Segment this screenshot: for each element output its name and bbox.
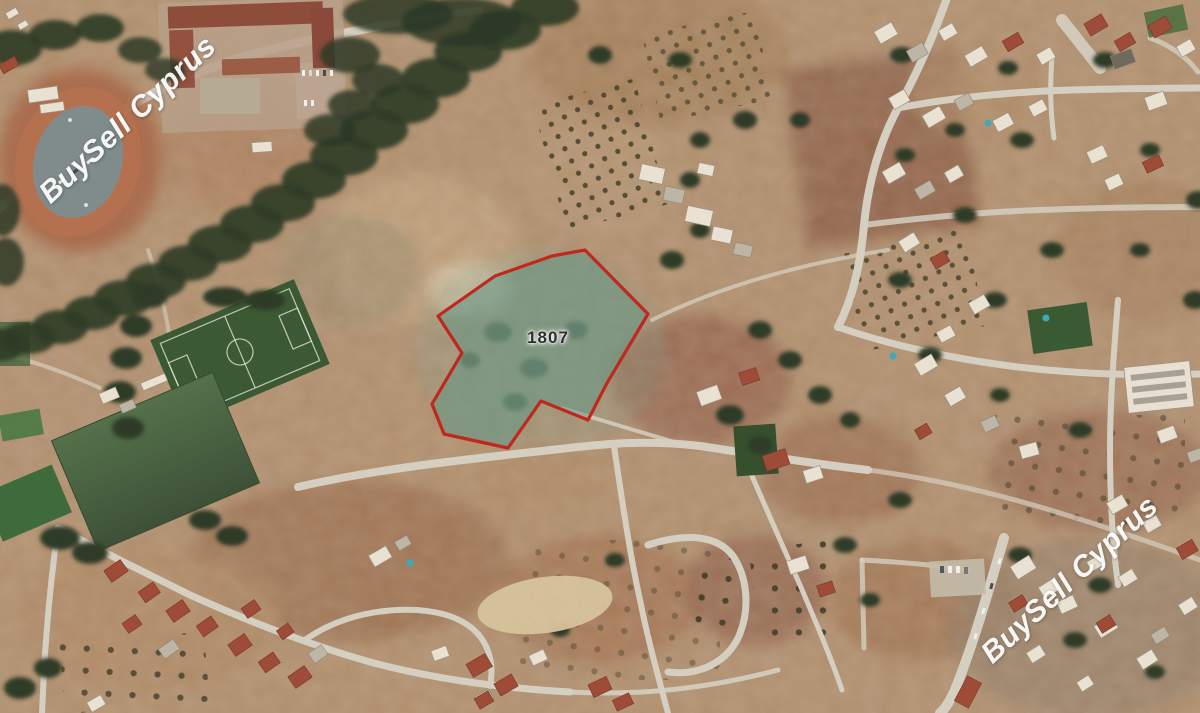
satellite-map-view: 1807 BuySell Cyprus BuySell Cyprus xyxy=(0,0,1200,713)
plot-number-label: 1807 xyxy=(527,328,569,348)
apartment-building xyxy=(1124,361,1194,414)
